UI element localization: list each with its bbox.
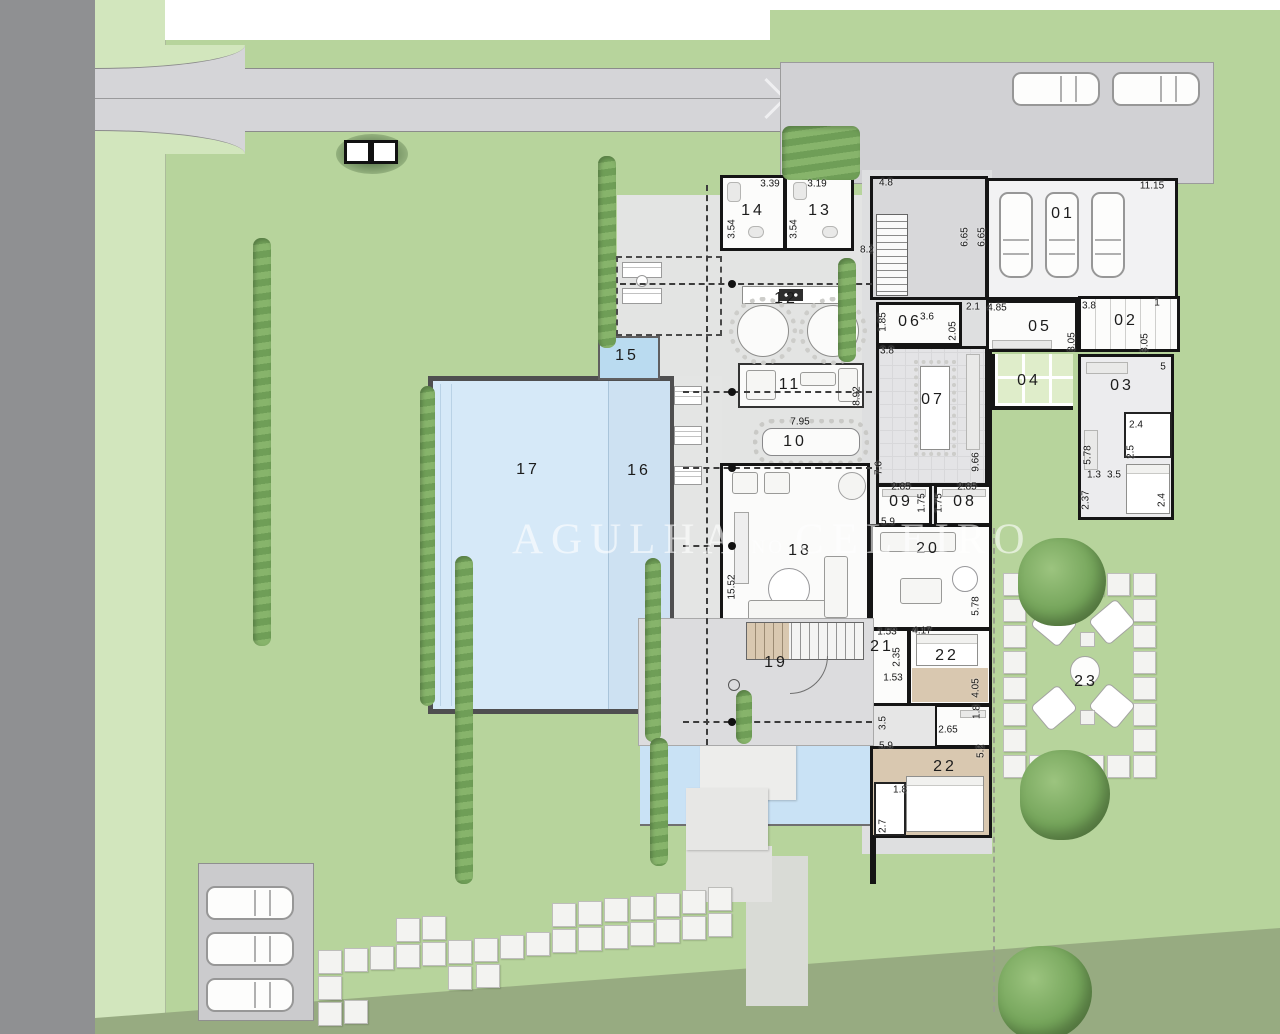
dimension-label: 2.85 [891, 482, 910, 493]
dimension-label: 4.17 [912, 626, 931, 637]
dimension-label: 2.05 [948, 321, 959, 340]
stepping-stone [708, 913, 732, 937]
patio-stone [1133, 651, 1156, 674]
room-number-label: 15 [615, 347, 639, 365]
watermark-word: CELEIRO [795, 515, 1033, 564]
room-number-label: 08 [953, 493, 977, 511]
site-plan: 0102030405060708091011121314151617181920… [0, 0, 1280, 1034]
dimension-label: 6.65 [960, 227, 971, 246]
car-windshield [1049, 239, 1074, 255]
sidewalk-verge [95, 0, 166, 1034]
dimension-label: 5 [1160, 362, 1166, 373]
dimension-label: 1.8 [972, 705, 983, 719]
dimension-label: 3.8 [880, 346, 894, 357]
stepping-stone [604, 925, 628, 949]
dimension-label: 1.85 [878, 312, 889, 331]
patio-side-table [1080, 710, 1095, 725]
patio-stone [1003, 677, 1026, 700]
stepping-stone [500, 935, 524, 959]
patio-stone [1133, 599, 1156, 622]
stepping-stone [318, 950, 342, 974]
stepping-stone [422, 942, 446, 966]
stepping-stone [526, 932, 550, 956]
dining-table-10 [762, 428, 860, 456]
dimension-label: 9.66 [971, 452, 982, 471]
car [999, 192, 1033, 278]
section-dot [728, 718, 736, 726]
sofa [746, 370, 776, 400]
hedge-row [598, 156, 616, 348]
armchair [732, 472, 758, 494]
dimension-label: 1.53 [877, 627, 896, 638]
hedge-row [253, 238, 271, 646]
room-number-label: 02 [1114, 312, 1138, 330]
stepping-stone [604, 898, 628, 922]
dimension-label: 3.05 [1067, 332, 1078, 351]
dimension-label: 3.8 [1082, 301, 1096, 312]
stepping-stone [630, 896, 654, 920]
room-number-label: 19 [764, 654, 788, 672]
desk [900, 578, 942, 604]
dimension-label: 2.85 [957, 482, 976, 493]
wall-stub [870, 838, 876, 884]
car-windshield [254, 936, 271, 961]
dimension-label: 5.9 [879, 741, 893, 752]
dimension-label: 2.4 [1129, 420, 1143, 431]
entry-staircase [876, 214, 908, 296]
patio-stone [1003, 625, 1026, 648]
bench [371, 140, 398, 164]
room-number-label: 22 [935, 647, 959, 665]
stepping-stone [344, 948, 368, 972]
bench [344, 140, 371, 164]
stepping-stone [318, 1002, 342, 1026]
watermark-word: NO [752, 537, 785, 559]
stepping-stone [318, 976, 342, 1000]
dimension-label: 2.4 [1157, 493, 1168, 507]
car [1112, 72, 1200, 106]
dimension-label: 3.54 [789, 219, 800, 238]
dimension-label: 2.5 [1126, 445, 1137, 459]
patio-stone [1133, 729, 1156, 752]
room-number-label: 01 [1051, 205, 1075, 223]
dimension-label: 2.7 [878, 819, 889, 833]
dimension-label: 3.5 [878, 716, 889, 730]
dimension-label: 4.05 [971, 678, 982, 697]
dimension-label: 2.65 [938, 725, 957, 736]
top-margin-right [770, 0, 1280, 10]
bath-fixture [727, 182, 741, 202]
room-number-label: 07 [921, 391, 945, 409]
car-windshield [1095, 239, 1120, 255]
dimension-label: 2.37 [1081, 490, 1092, 509]
dimension-label: 1 [1154, 298, 1160, 309]
car-windshield [1160, 76, 1177, 101]
hedge-row [455, 556, 473, 884]
road-center-line [95, 98, 788, 99]
bath-fixture [748, 226, 764, 238]
stepping-stone [476, 964, 500, 988]
stepping-stone [396, 944, 420, 968]
car-windshield [1003, 239, 1028, 255]
dimension-label: 5.78 [971, 596, 982, 615]
section-line [683, 721, 872, 723]
room-number-label: 13 [808, 202, 832, 220]
patio-stone [1133, 677, 1156, 700]
room-number-label: 04 [1017, 372, 1041, 390]
dimension-label: 7.95 [790, 417, 809, 428]
patio-stone [1133, 703, 1156, 726]
car [206, 978, 294, 1012]
car-windshield [254, 890, 271, 915]
car [206, 932, 294, 966]
stepping-stone [474, 938, 498, 962]
stepping-stone [578, 901, 602, 925]
room-number-label: 10 [783, 433, 807, 451]
room-number-label: 21 [870, 638, 894, 656]
pool-lap-lines [440, 384, 452, 706]
dimension-label: 3.6 [920, 312, 934, 323]
dimension-label: 3.39 [760, 179, 779, 190]
hedge-row [838, 258, 856, 362]
terrace-lounger [622, 288, 662, 304]
stepping-stone [630, 922, 654, 946]
dimension-label: 1.53 [883, 673, 902, 684]
room-number-label: 12 [774, 290, 798, 308]
kitchen-counter [966, 354, 980, 450]
street-vertical [0, 0, 97, 1034]
room-number-label: 09 [889, 493, 913, 511]
dimension-label: 4.85 [987, 303, 1006, 314]
stepping-stone [656, 893, 680, 917]
desk [1086, 362, 1128, 374]
lounge-chair [952, 566, 978, 592]
section-line [683, 391, 872, 393]
dimension-label: 1.75 [917, 493, 928, 512]
patio-stone [1107, 755, 1130, 778]
room-number-label: 23 [1074, 673, 1098, 691]
stepping-stone [682, 916, 706, 940]
dimension-label: 3.19 [807, 179, 826, 190]
hedge-row [420, 386, 435, 706]
chaise [824, 556, 848, 618]
room-number-label: 03 [1110, 377, 1134, 395]
hedge-row [645, 558, 661, 742]
section-dot [728, 464, 736, 472]
stepping-stone [552, 929, 576, 953]
boundary-dashed [993, 528, 995, 1012]
stepping-stone [682, 890, 706, 914]
car-windshield [254, 982, 271, 1007]
pool-lounger [674, 386, 702, 405]
patio-stone [1133, 625, 1156, 648]
car-windshield [1060, 76, 1077, 101]
stepping-stone [422, 916, 446, 940]
fan-icon [728, 679, 740, 691]
room-number-label: 22 [933, 758, 957, 776]
dimension-label: 8.2 [860, 245, 874, 256]
dimension-label: 2.1 [966, 302, 980, 313]
section-line-vertical [706, 185, 708, 745]
patio-stone [1003, 703, 1026, 726]
dimension-label: 1.8 [893, 785, 907, 796]
hedge-row [782, 126, 860, 180]
stepping-stone [578, 927, 602, 951]
dimension-label: 2.35 [892, 647, 903, 666]
dimension-label: 7.6 [874, 461, 885, 475]
dimension-label: 3.54 [727, 219, 738, 238]
bath-fixture [793, 182, 807, 200]
patio-stone [1133, 755, 1156, 778]
bed [906, 776, 984, 832]
patio-stone [1107, 573, 1130, 596]
patio-side-table [1080, 632, 1095, 647]
round-dining-table [737, 305, 789, 357]
side-table [838, 472, 866, 500]
car [206, 886, 294, 920]
dimension-label: 3.5 [1107, 470, 1121, 481]
room-number-label: 11 [779, 376, 802, 394]
terrace-side-table [636, 275, 648, 287]
room-number-label: 16 [627, 462, 651, 480]
bath-fixture [822, 226, 838, 238]
patio-stone [1133, 573, 1156, 596]
stepping-stone [708, 887, 732, 911]
room-number-label: 05 [1028, 318, 1052, 336]
stepping-stone [552, 903, 576, 927]
dimension-label: 6.65 [977, 227, 988, 246]
dimension-label: 5.2 [976, 744, 987, 758]
section-line [683, 467, 872, 469]
section-dot [728, 280, 736, 288]
patio-stone [1003, 651, 1026, 674]
car [1091, 192, 1125, 278]
stepping-stone [656, 919, 680, 943]
tree [998, 946, 1092, 1034]
car [1012, 72, 1100, 106]
dimension-label: 1.3 [1087, 470, 1101, 481]
stepping-stone [396, 918, 420, 942]
dimension-label: 4.8 [879, 178, 893, 189]
armchair [764, 472, 790, 494]
laundry-counter [992, 340, 1052, 349]
dimension-label: 8.92 [852, 386, 863, 405]
room-number-label: 17 [516, 461, 540, 479]
water-deck-2 [686, 788, 768, 850]
section-line [620, 283, 872, 285]
hedge-row [650, 738, 668, 866]
pool-lounger [674, 426, 702, 445]
section-dot [728, 388, 736, 396]
patio-stone [1003, 729, 1026, 752]
dimension-label: 5.78 [1083, 445, 1094, 464]
room-number-label: 06 [898, 313, 922, 331]
stepping-stone [370, 946, 394, 970]
driveway-road [245, 68, 790, 132]
dimension-label: 1.75 [934, 493, 945, 512]
desk [800, 372, 836, 386]
watermark: AGULHA NO CELEIRO [512, 515, 1033, 564]
dimension-label: 11.15 [1140, 181, 1164, 192]
stepping-stone [448, 940, 472, 964]
watermark-word: AGULHA [512, 515, 742, 564]
stepping-stone [448, 966, 472, 990]
dimension-label: 3.05 [1140, 333, 1151, 352]
top-margin [165, 0, 770, 40]
dimension-label: 15.52 [727, 574, 738, 599]
hedge-row [736, 690, 752, 744]
room-number-label: 14 [741, 202, 765, 220]
stepping-stone [344, 1000, 368, 1024]
